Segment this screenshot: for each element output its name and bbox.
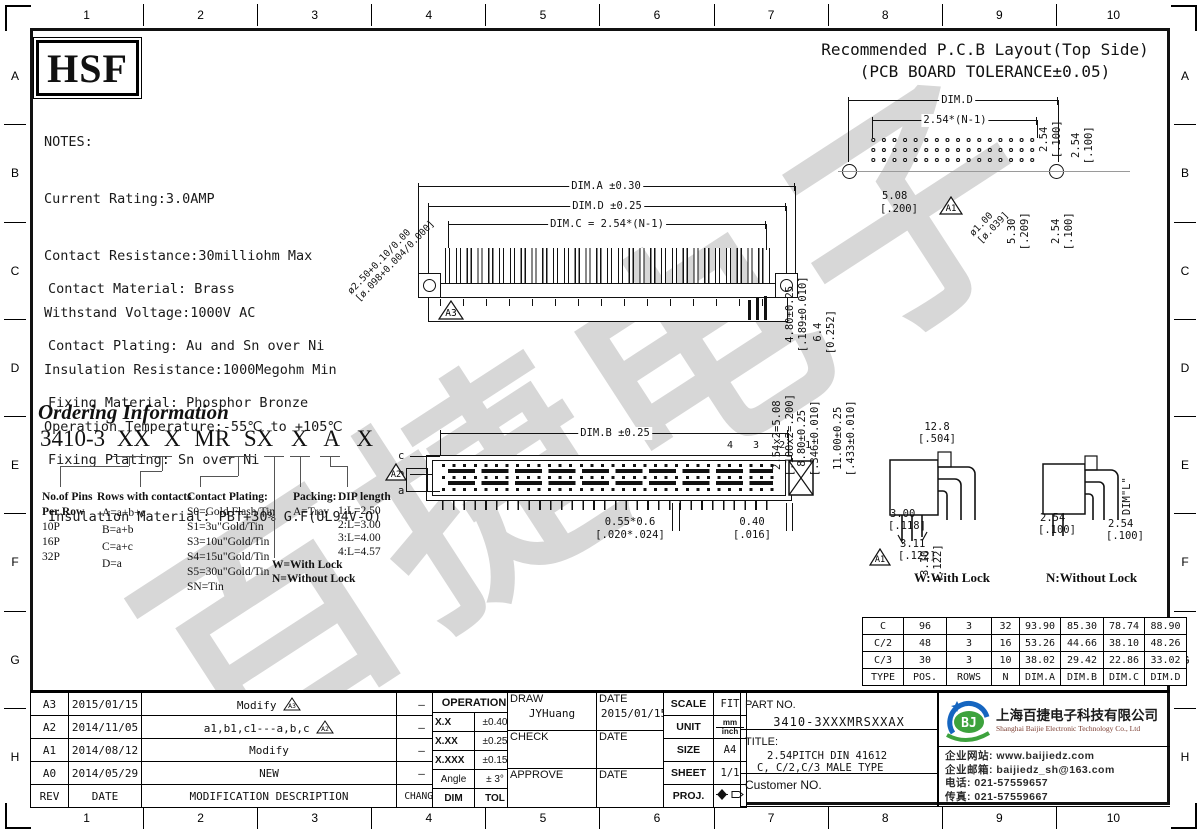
svg-text:BJ: BJ (961, 716, 977, 731)
material-line: Fixing Plating: Sn over Ni (48, 451, 381, 470)
part-block: PART NO. 3410-3XXXMRSXXAX TITLE: 2.54PIT… (740, 692, 938, 807)
grid-ruler-left: ABCDEFGH (4, 28, 26, 805)
revision-row: A2 2014/11/05 a1,b1,c1---a,b,c A2 — (31, 716, 447, 739)
company-website: 企业网站: www.baijiedz.com (945, 750, 1164, 764)
dim-label: DIM.D (939, 94, 975, 107)
ordering-col-rows: Rows with contacts A=a+b+c B=a+b C=a+c D… (97, 490, 192, 573)
dim-label: 2.54*(N-1) (921, 114, 988, 127)
polarize-key (406, 468, 428, 492)
ordering-lock-note: W=With Lock N=Without Lock (272, 558, 355, 586)
svg-text:A1: A1 (875, 555, 885, 565)
meta-table: SCALE FIT UNIT mm inch SIZE A4 SHEET 1/1… (663, 692, 747, 808)
ordering-col-plating: Contact Plating: S0=Gold Flash/Tin S1=3u… (187, 490, 275, 595)
material-line: Contact Material: Brass (48, 280, 381, 299)
ordering-col-packing: Packing: A=Tray (293, 490, 336, 520)
with-lock-caption: W:With Lock (914, 570, 990, 586)
contact-row-c (442, 464, 776, 467)
dim-label: [.016] (731, 529, 773, 542)
dim-label: DIM.C = 2.54*(N-1) (548, 218, 666, 231)
dim-label: 3.00 (888, 508, 917, 521)
row-label: a (396, 485, 406, 498)
grid-ruler-top: 12345678910 (30, 4, 1170, 26)
approve-label: APPROVE (508, 769, 597, 808)
part-no-value: 3410-3XXXMRSXXAX (745, 715, 933, 729)
svg-text:A3: A3 (445, 308, 456, 319)
revision-row: A1 2014/08/12 Modify — (31, 739, 447, 762)
notes-line: Current Rating:3.0AMP (44, 190, 343, 209)
dim-label: [.118] (886, 520, 928, 533)
connector-body (437, 283, 778, 298)
lock-slots (448, 469, 773, 473)
company-name-en: Shanghai Baijie Electronic Technology Co… (996, 724, 1158, 733)
corner-mark (5, 803, 31, 829)
dim-label: 12.8 (922, 421, 951, 434)
revision-flag: A1 (938, 196, 964, 216)
draw-label: DRAW (510, 693, 594, 705)
grid-ruler-right: ABCDEFGH (1174, 28, 1196, 805)
dim-label: 2.54 (1038, 512, 1067, 525)
drawing-title-line2: C, C/2,C/3 MALE TYPE (745, 762, 933, 774)
revision-row: A3 2015/01/15 Modify A3 — (31, 693, 447, 716)
revision-flag: A1 (868, 548, 892, 567)
pcb-title: Recommended P.C.B Layout(Top Side) (819, 40, 1151, 59)
revision-table: A3 2015/01/15 Modify A3 — A2 2014/11/05 … (30, 692, 447, 808)
dim-label: DIM.A ±0.30 (569, 180, 643, 193)
dim-label: DIM.B ±0.25 (578, 427, 652, 440)
dim-label: 2.54[.100] (1038, 120, 1064, 158)
table-header-row: TYPEPOS. ROWSN DIM.ADIM.B DIM.CDIM.D (863, 669, 1187, 686)
customer-no-label: Customer NO. (741, 774, 937, 796)
draw-name: JYHuang (510, 707, 594, 720)
revision-flag: A3 (437, 300, 465, 321)
dim-label: 4.80±0.25[.189±0.010] (784, 276, 810, 352)
table-row: C 96 3 32 93.90 85.30 78.74 88.90 (863, 618, 1187, 635)
company-phone: 电话: 021-57559657 (945, 777, 1164, 791)
dim-label: [.200] (878, 203, 920, 216)
date-label: DATE (599, 693, 669, 705)
revision-header-row: REV DATE MODIFICATION DESCRIPTION CHANGE (31, 785, 447, 808)
dim-label: 0.40 (737, 516, 766, 529)
centerline (838, 171, 1130, 172)
ordering-code: 3410-3 XX X MR SX X A X (40, 426, 373, 452)
title-label: TITLE: (745, 736, 778, 748)
material-line: Contact Plating: Au and Sn over Ni (48, 337, 381, 356)
dim-label: 8.80±0.25[.346±0.010] (796, 400, 822, 476)
dim-label: [.100] (1104, 530, 1146, 543)
dim-label: 11.00±0.25[.433±0.010] (832, 400, 858, 476)
dimension-table: C 96 3 32 93.90 85.30 78.74 88.90 C/248 … (862, 617, 1187, 686)
dim-label: 2.54 (1106, 518, 1135, 531)
row-label: c (396, 450, 406, 463)
base-notches (440, 299, 776, 306)
ordering-col-pins: No.of Pins Per Row 10P 16P 32P (42, 490, 92, 565)
dim-label: 5.30[.209] (1006, 212, 1032, 250)
svg-text:A2: A2 (391, 470, 401, 480)
mounting-ear (418, 273, 441, 298)
revision-flag: A2 (384, 463, 408, 482)
dim-label: 6.4[0.252] (812, 310, 838, 354)
dim-label: DIM"L" (1121, 477, 1134, 515)
dim-label: [.100] (1036, 524, 1078, 537)
notes-title: NOTES: (44, 133, 343, 152)
company-name-cn: 上海百捷电子科技有限公司 (996, 707, 1158, 724)
pcb-subtitle: (PCB BOARD TOLERANCE±0.05) (858, 62, 1112, 81)
dim-label: [.504] (916, 433, 958, 446)
drawing-title-line1: 2.54PITCH DIN 41612 (745, 750, 933, 762)
part-no-label: PART NO. (745, 699, 796, 711)
lock-slots (448, 481, 773, 485)
dim-label: DIM.D ±0.25 (570, 200, 644, 213)
company-logo: BJ (941, 697, 993, 743)
revision-flag: A2 (316, 720, 334, 734)
contact-row-a (442, 488, 776, 491)
date-label: DATE (597, 731, 672, 769)
signoff-table: DRAW JYHuang DATE 2015/01/15 CHECK DATE … (507, 692, 672, 808)
grid-ruler-bottom: 12345678910 (30, 807, 1170, 829)
company-fax: 传真: 021-57559667 (945, 791, 1164, 805)
dim-label: 2.54[.100] (1050, 212, 1076, 250)
draw-date: 2015/01/15 (599, 707, 669, 720)
contact-row-b (442, 476, 776, 479)
ordering-title: Ordering Information (38, 400, 229, 425)
tolerance-table: OPERATION X.X±0.40 X.XX±0.25 X.XXX±0.15 … (432, 692, 516, 808)
company-email: 企业邮箱: baijiedz_sh@163.com (945, 764, 1164, 778)
table-row: C/330 310 38.0229.42 22.8633.02 (863, 652, 1187, 669)
pcb-hole-grid (868, 135, 1040, 165)
without-lock-caption: N:Without Lock (1046, 570, 1137, 586)
dim-label: [.020*.024] (593, 529, 667, 542)
date-label: DATE (597, 769, 672, 808)
dim-label: 2.54[.100] (1070, 126, 1096, 164)
svg-text:A3: A3 (288, 702, 296, 710)
dim-label: 5.08 (880, 190, 909, 203)
ordering-col-dip: DIP length 1:L=2.50 2:L=3.00 3:L=4.00 4:… (338, 490, 391, 559)
pin-tips (442, 501, 776, 510)
dim-label: 2.54x2=5.08[.100x2=.200] (771, 394, 797, 476)
dim-label: 0.55*0.6 (603, 516, 658, 529)
svg-text:A1: A1 (946, 204, 957, 214)
connector-pins (445, 248, 770, 283)
revision-flag: A3 (283, 697, 301, 711)
check-label: CHECK (508, 731, 597, 769)
svg-text:A2: A2 (321, 725, 329, 733)
revision-row: A0 2014/05/29 NEW — (31, 762, 447, 785)
drawing-sheet: 百捷电子 12345678910 12345678910 ABCDEFGH AB… (0, 0, 1200, 832)
company-block: BJ 上海百捷电子科技有限公司 Shanghai Baijie Electron… (938, 692, 1170, 807)
corner-mark (1171, 803, 1197, 829)
title-block: A3 2015/01/15 Modify A3 — A2 2014/11/05 … (30, 690, 1170, 805)
hsf-logo: HSF (36, 40, 139, 96)
table-row: C/248 316 53.2644.66 38.1048.26 (863, 635, 1187, 652)
